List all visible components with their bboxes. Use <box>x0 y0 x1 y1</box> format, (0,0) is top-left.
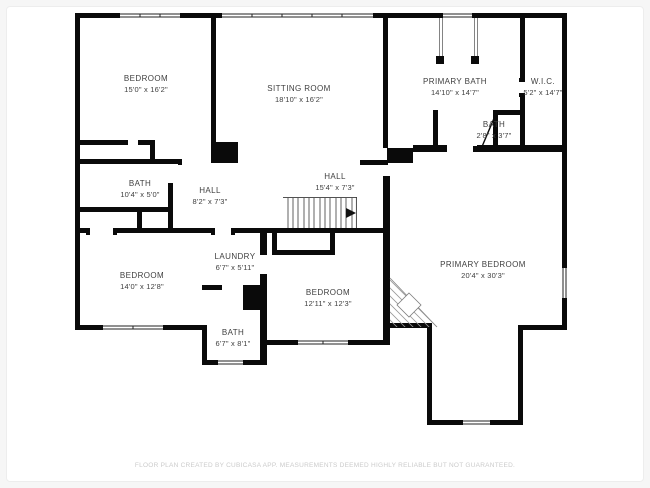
shower-glass <box>436 18 479 64</box>
footer-disclaimer: FLOOR PLAN CREATED BY CUBICASA APP. MEAS… <box>0 462 650 469</box>
floor-plan-drawing <box>0 0 650 488</box>
interior-walls <box>75 18 567 365</box>
bath-door-line <box>481 116 495 149</box>
floor-plan: BEDROOM15'0" x 16'2"SITTING ROOM18'10" x… <box>0 0 650 488</box>
door-jambs <box>86 78 525 290</box>
staircase <box>283 197 357 228</box>
winder-stairs-hatch <box>340 270 471 345</box>
